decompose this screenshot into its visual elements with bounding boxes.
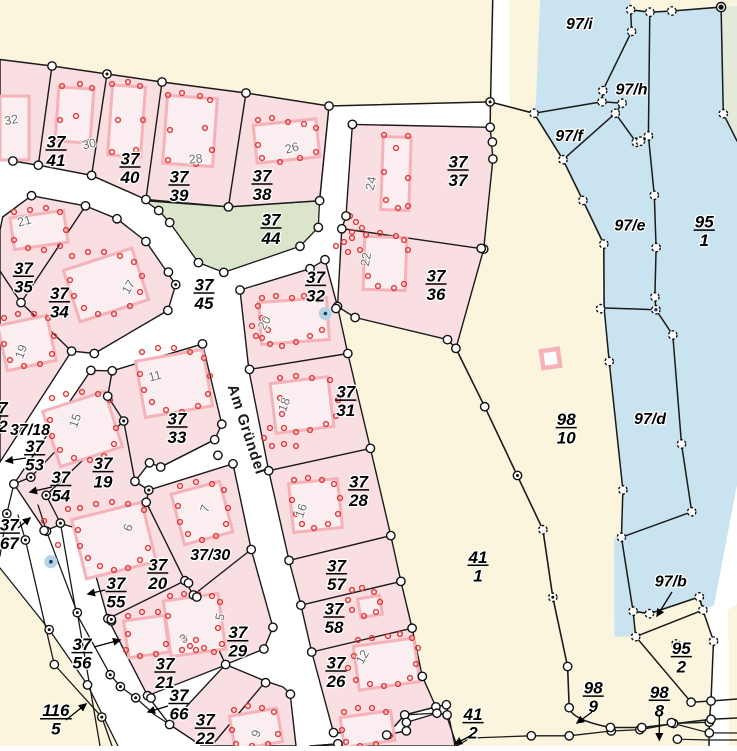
svg-text:39: 39 [170,186,189,205]
svg-text:37: 37 [195,276,215,295]
svg-text:2: 2 [467,724,478,743]
svg-text:37: 37 [170,686,190,705]
svg-text:45: 45 [194,294,214,313]
svg-text:54: 54 [51,487,70,506]
svg-text:97/e: 97/e [614,217,645,234]
svg-text:34: 34 [50,303,69,322]
svg-text:37: 37 [253,167,273,186]
svg-text:32: 32 [306,286,325,305]
svg-text:37: 37 [196,711,216,730]
svg-text:97/d: 97/d [634,411,667,428]
svg-text:95: 95 [672,639,691,658]
svg-text:98: 98 [650,683,669,702]
svg-text:32: 32 [3,112,19,128]
svg-text:22: 22 [358,251,374,267]
svg-text:37: 37 [262,211,282,230]
svg-text:37: 37 [94,454,114,473]
svg-text:37: 37 [168,410,188,429]
svg-text:30: 30 [81,136,98,153]
svg-text:22: 22 [195,729,215,746]
svg-text:116: 116 [42,701,70,720]
svg-text:1: 1 [473,566,482,585]
svg-text:5: 5 [51,720,61,739]
svg-text:58: 58 [325,618,344,637]
svg-text:37: 37 [51,468,71,487]
svg-text:98: 98 [584,679,603,698]
svg-text:97/i: 97/i [566,16,593,33]
svg-text:37: 37 [327,654,347,673]
svg-text:37: 37 [170,168,190,187]
svg-text:37: 37 [121,150,141,169]
svg-text:37: 37 [449,153,469,172]
svg-text:37: 37 [427,267,447,286]
svg-text:98: 98 [557,410,576,429]
svg-text:2: 2 [676,658,687,677]
svg-text:37: 37 [0,516,20,535]
svg-text:55: 55 [107,593,126,612]
svg-text:37: 37 [73,635,93,654]
svg-text:19: 19 [94,473,113,492]
svg-text:31: 31 [336,401,355,420]
svg-text:53: 53 [25,456,44,475]
svg-text:37/30: 37/30 [190,547,230,564]
svg-text:38: 38 [253,185,272,204]
svg-text:37: 37 [306,268,326,287]
svg-text:36: 36 [427,285,446,304]
svg-text:35: 35 [14,277,33,296]
svg-text:2: 2 [0,417,8,436]
svg-text:37: 37 [336,383,356,402]
svg-text:29: 29 [227,642,247,661]
svg-text:28: 28 [348,491,368,510]
svg-text:20: 20 [147,574,167,593]
svg-text:37: 37 [327,556,347,575]
svg-text:33: 33 [168,428,187,447]
svg-text:1: 1 [699,231,708,250]
svg-text:57: 57 [327,575,347,594]
svg-text:37: 37 [25,437,45,456]
svg-text:28: 28 [188,151,203,166]
svg-text:37: 37 [148,556,168,575]
svg-text:37: 37 [107,574,127,593]
svg-text:56: 56 [73,654,92,673]
svg-text:37: 37 [228,623,248,642]
svg-text:41: 41 [468,548,488,567]
svg-text:37: 37 [47,133,67,152]
svg-text:41: 41 [46,151,66,170]
svg-text:24: 24 [363,175,379,191]
svg-text:37: 37 [325,600,345,619]
svg-text:37: 37 [156,655,176,674]
svg-text:37: 37 [50,284,70,303]
svg-text:66: 66 [170,705,189,724]
svg-text:97/h: 97/h [615,81,647,98]
svg-text:37: 37 [14,259,34,278]
svg-text:37/18: 37/18 [10,422,50,439]
svg-text:41: 41 [463,705,483,724]
svg-text:10: 10 [557,429,576,448]
svg-text:26: 26 [326,672,346,691]
svg-text:37: 37 [449,171,469,190]
svg-text:95: 95 [695,213,714,232]
svg-text:97/f: 97/f [555,128,584,145]
svg-text:97/b: 97/b [655,574,687,591]
svg-text:40: 40 [120,168,140,187]
svg-text:37: 37 [349,472,369,491]
svg-text:44: 44 [261,229,281,248]
svg-text:67: 67 [0,534,20,553]
